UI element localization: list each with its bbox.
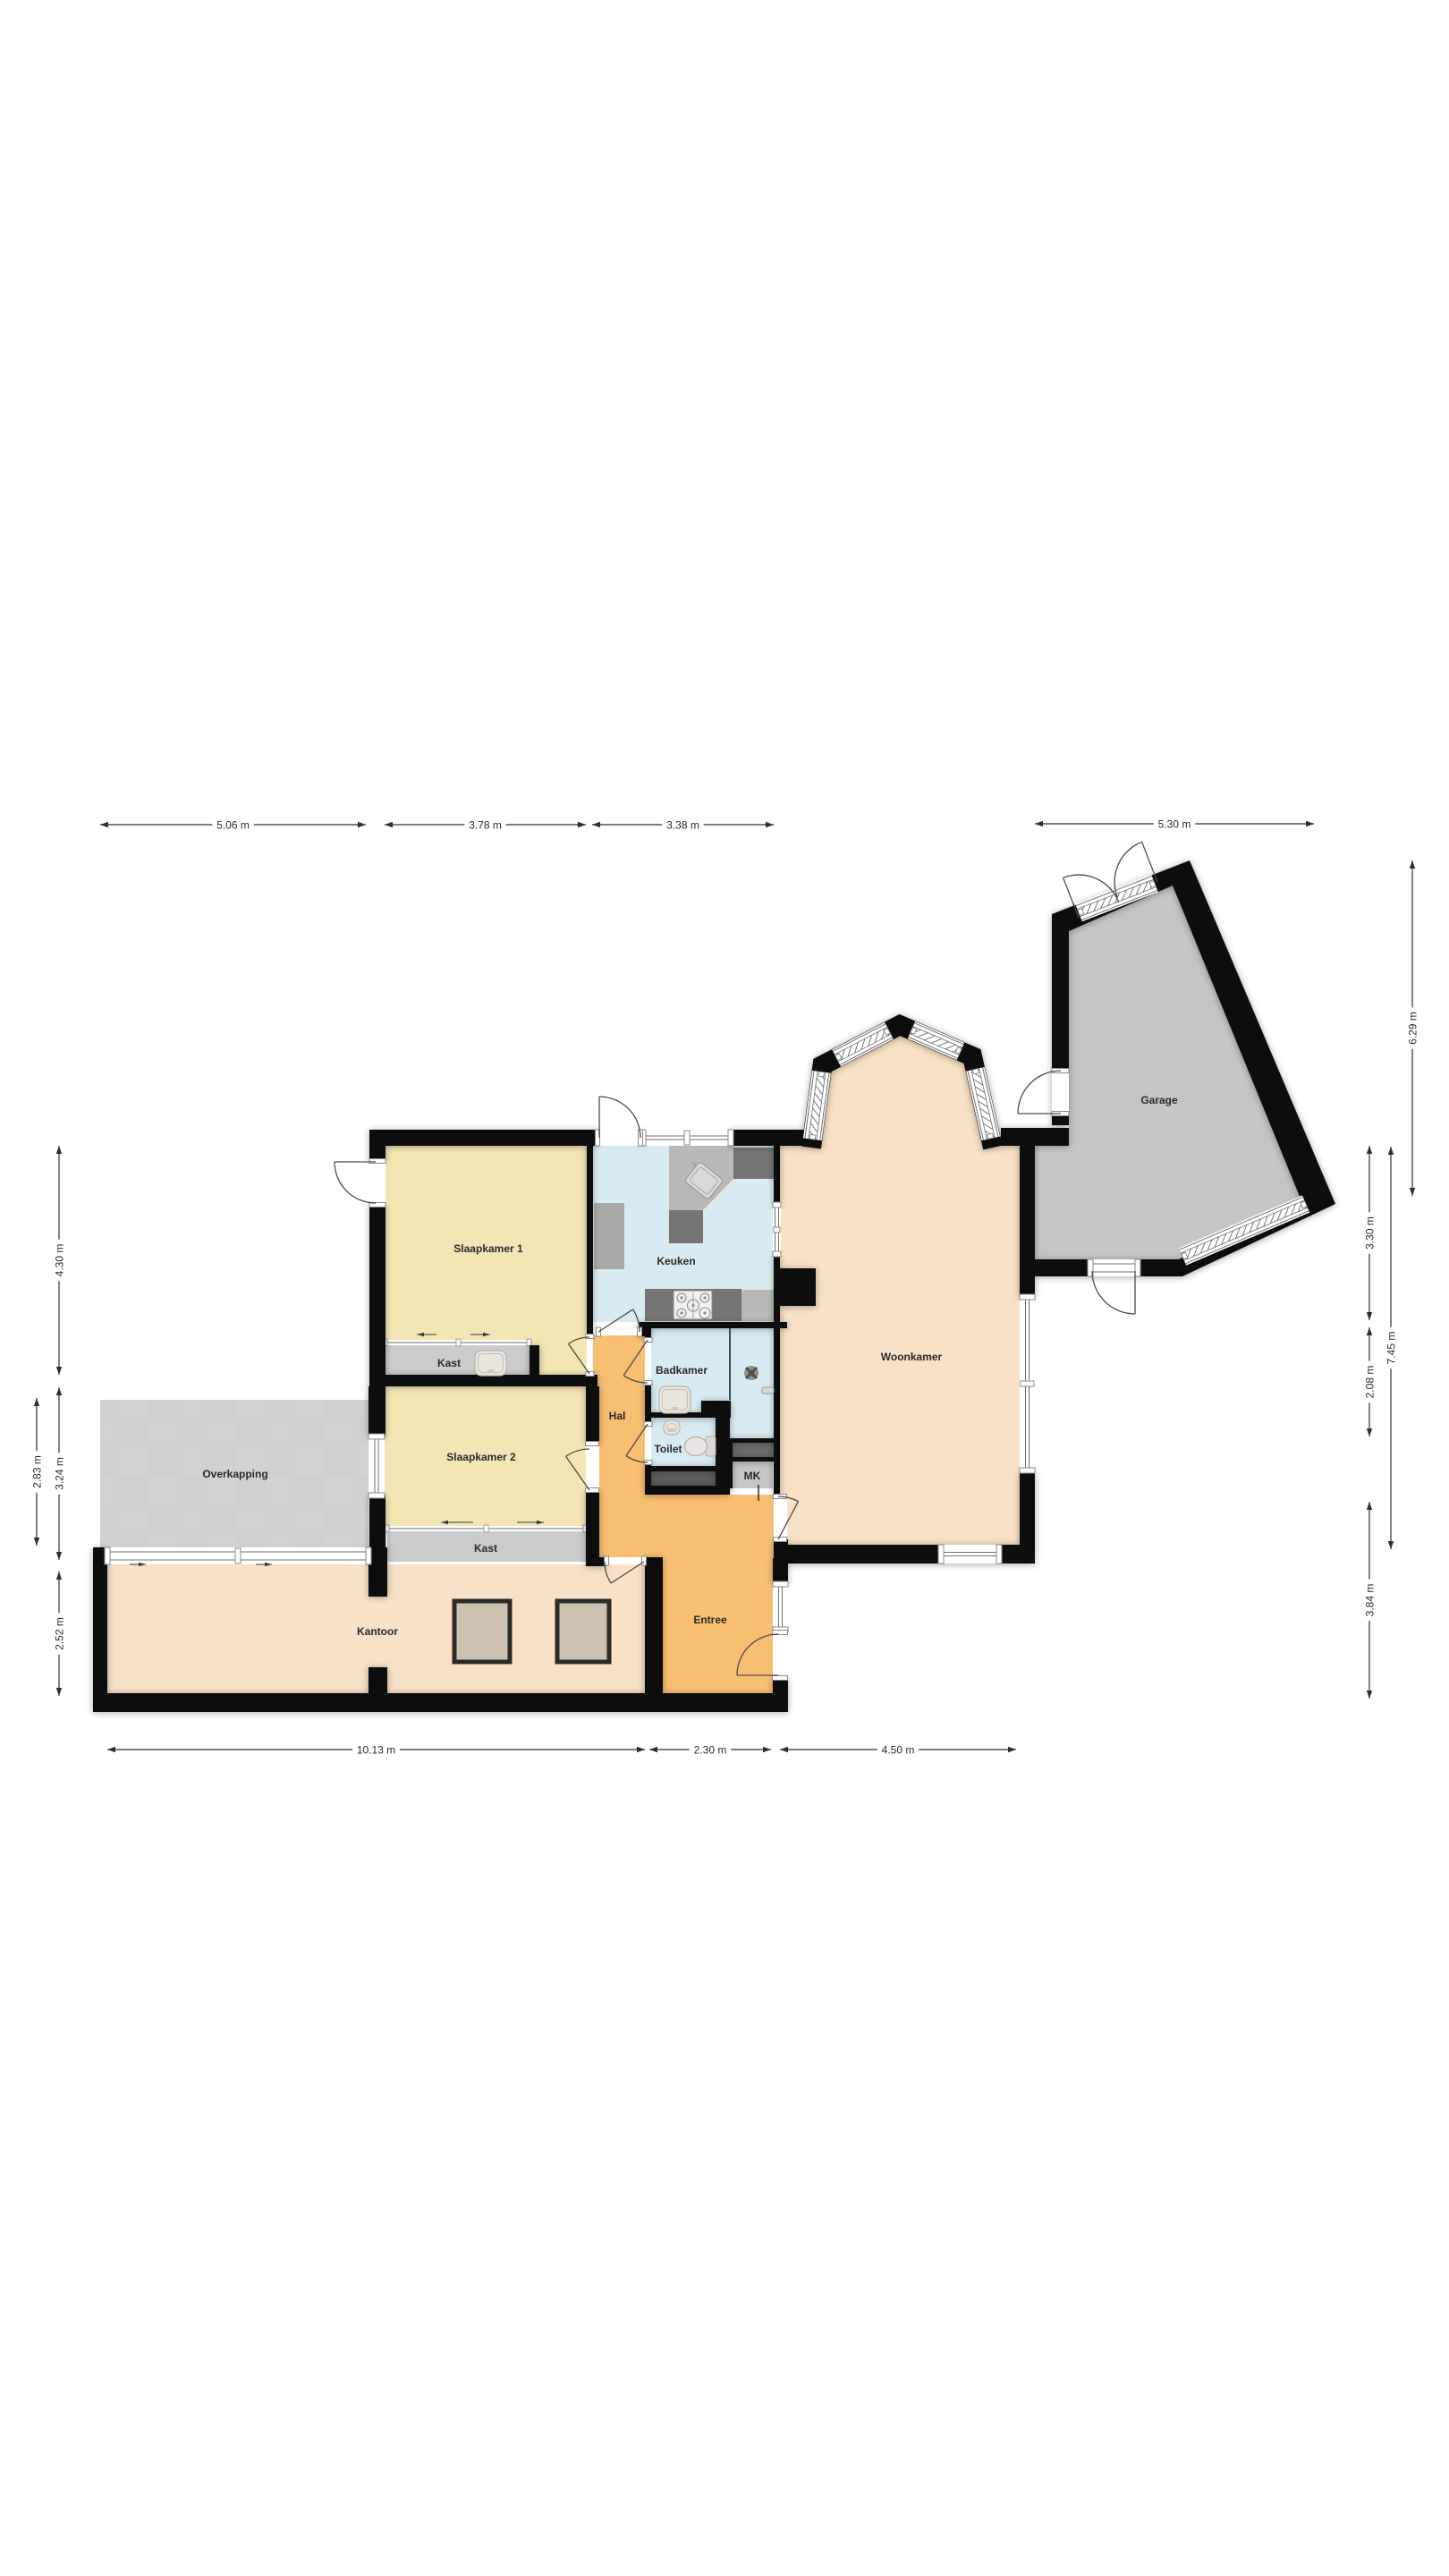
svg-text:4.30 m: 4.30 m xyxy=(54,1244,66,1277)
svg-text:Toilet: Toilet xyxy=(654,1443,682,1455)
svg-text:Badkamer: Badkamer xyxy=(656,1364,708,1377)
svg-text:3.78 m: 3.78 m xyxy=(469,819,502,832)
svg-text:4.50 m: 4.50 m xyxy=(882,1744,915,1757)
svg-text:2.30 m: 2.30 m xyxy=(694,1744,727,1757)
svg-text:3.24 m: 3.24 m xyxy=(54,1457,66,1490)
svg-text:2.52 m: 2.52 m xyxy=(54,1617,66,1650)
svg-text:10.13 m: 10.13 m xyxy=(357,1744,395,1757)
svg-text:Slaapkamer 1: Slaapkamer 1 xyxy=(453,1242,523,1255)
svg-text:Garage: Garage xyxy=(1140,1094,1178,1106)
svg-text:2.83 m: 2.83 m xyxy=(31,1455,44,1488)
svg-text:6.29 m: 6.29 m xyxy=(1407,1012,1419,1045)
svg-text:2.08 m: 2.08 m xyxy=(1364,1366,1377,1399)
svg-text:Entree: Entree xyxy=(693,1614,727,1626)
svg-text:Kantoor: Kantoor xyxy=(357,1625,398,1638)
svg-text:Hal: Hal xyxy=(609,1410,626,1422)
svg-text:Slaapkamer 2: Slaapkamer 2 xyxy=(446,1451,516,1463)
svg-text:Kast: Kast xyxy=(474,1542,497,1555)
svg-text:Woonkamer: Woonkamer xyxy=(881,1351,943,1363)
svg-text:5.30 m: 5.30 m xyxy=(1158,818,1191,831)
svg-text:3.84 m: 3.84 m xyxy=(1364,1584,1377,1617)
svg-text:Kast: Kast xyxy=(437,1357,461,1369)
svg-text:3.38 m: 3.38 m xyxy=(666,819,699,832)
svg-text:3.30 m: 3.30 m xyxy=(1364,1216,1377,1250)
svg-text:MK: MK xyxy=(744,1470,761,1482)
svg-text:5.06 m: 5.06 m xyxy=(216,819,250,832)
svg-text:Keuken: Keuken xyxy=(657,1255,695,1267)
svg-text:7.45 m: 7.45 m xyxy=(1385,1332,1398,1365)
svg-text:Overkapping: Overkapping xyxy=(202,1468,267,1480)
